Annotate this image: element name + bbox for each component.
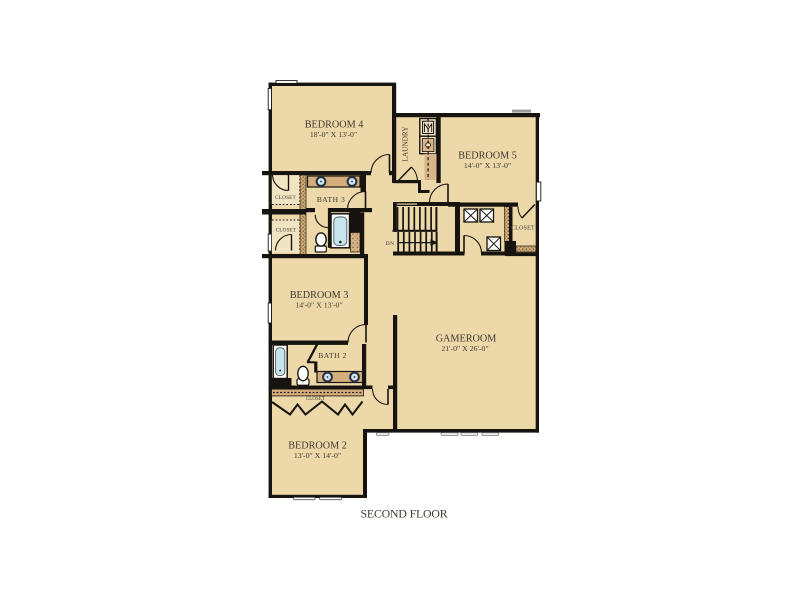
svg-text:14'-0" X 13'-0": 14'-0" X 13'-0" [295,300,342,309]
svg-text:SECOND FLOOR: SECOND FLOOR [360,507,447,521]
svg-text:BATH 2: BATH 2 [318,351,347,360]
svg-text:CLOSET: CLOSET [306,397,325,402]
svg-text:21'-0" X 26'-0": 21'-0" X 26'-0" [441,344,488,353]
svg-text:18'-0" X 13'-0": 18'-0" X 13'-0" [310,130,357,139]
svg-text:LAUNDRY: LAUNDRY [401,126,410,162]
svg-text:14'-0" X 13'-0": 14'-0" X 13'-0" [464,161,511,170]
svg-text:BEDROOM 4: BEDROOM 4 [305,120,364,131]
svg-text:GAMEROOM: GAMEROOM [436,334,497,345]
svg-text:13'-0" X 14'-0": 13'-0" X 14'-0" [294,451,341,460]
svg-text:BATH 3: BATH 3 [317,195,346,204]
svg-text:CLOSET: CLOSET [511,226,535,232]
svg-text:CLOSET: CLOSET [276,228,297,234]
svg-text:CLOSET: CLOSET [275,195,296,201]
svg-text:DN: DN [386,241,395,247]
